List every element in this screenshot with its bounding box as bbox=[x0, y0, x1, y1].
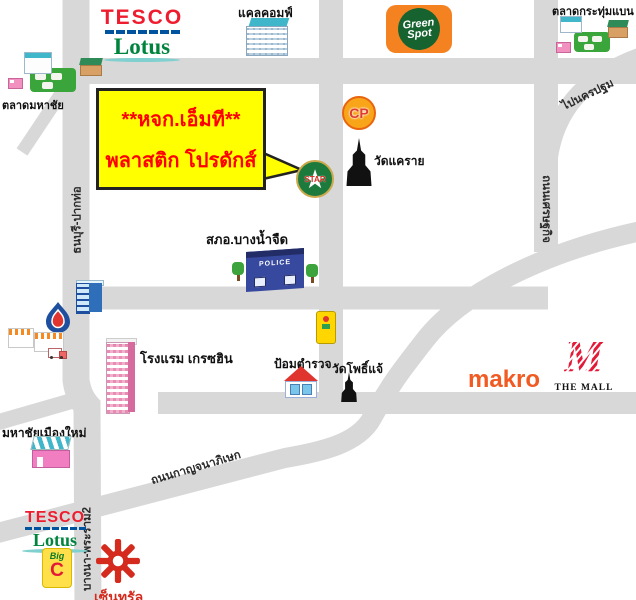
company-name-line2: พลาสติก โปรดักส์ bbox=[99, 144, 263, 176]
the-mall-word: THE MALL bbox=[554, 383, 614, 393]
star-word: STAR bbox=[298, 175, 332, 184]
the-mall-logo: M THE MALL bbox=[554, 334, 614, 393]
lotus-wordmark: Lotus bbox=[16, 532, 94, 549]
green-spot-word2: Spot bbox=[407, 28, 432, 41]
central-flower-icon bbox=[95, 538, 141, 584]
hotel-building-icon bbox=[106, 338, 136, 412]
roadside-sign-icon bbox=[316, 311, 336, 344]
road-left-exit bbox=[0, 398, 82, 424]
pink-house-icon bbox=[32, 436, 70, 468]
pink-house-roof bbox=[30, 436, 71, 450]
wat-pho-chae-label: วัดโพธิ์แจ้ bbox=[332, 360, 383, 379]
police-box-body bbox=[285, 381, 317, 398]
krathum-market-field-icon bbox=[574, 32, 610, 52]
ptt-flame-icon bbox=[46, 302, 70, 334]
road-label-thonburi-paktho: ธนบุรี-ปากท่อ bbox=[69, 173, 87, 268]
makro-logo: makro bbox=[468, 366, 540, 394]
sign-dot bbox=[323, 316, 329, 322]
police-sign: POLICE bbox=[246, 258, 304, 269]
tesco-wordmark: TESCO bbox=[98, 8, 186, 28]
krathum-market-building-icon bbox=[560, 16, 582, 33]
krathum-market-house-icon bbox=[608, 20, 628, 38]
big-c-logo: Big C bbox=[42, 548, 72, 588]
police-building: POLICE bbox=[246, 248, 304, 292]
green-spot-circle: Green Spot bbox=[396, 6, 442, 52]
tree-icon bbox=[306, 264, 318, 284]
the-mall-m-icon: M bbox=[554, 334, 614, 378]
shop-icon bbox=[8, 328, 34, 348]
wat-khae-rai-label: วัดแคราย bbox=[374, 152, 425, 171]
sign-bar bbox=[322, 324, 330, 329]
police-window bbox=[284, 275, 296, 286]
lotus-wordmark: Lotus bbox=[98, 36, 186, 58]
tesco-lotus-logo-bottom: TESCO Lotus bbox=[16, 510, 94, 553]
central-word: เซ็นทรัล bbox=[94, 587, 142, 600]
blue-building-icon bbox=[76, 280, 103, 312]
the-mall-m: M bbox=[563, 334, 605, 378]
police-station-icon: POLICE bbox=[232, 246, 316, 292]
road-label-setthakit: ถนนเศรษฐกิจ bbox=[537, 164, 555, 254]
green-spot-logo: Green Spot bbox=[386, 5, 452, 53]
tree-icon bbox=[232, 262, 244, 282]
mahachai-market-building-icon bbox=[24, 52, 52, 74]
star-gas-logo: ★ STAR bbox=[296, 160, 334, 198]
krathum-market-truck-icon bbox=[556, 42, 571, 53]
map-canvas: ธนบุรี-ปากท่อ บางนา-พระราม2 ถนนเศรษฐกิจ … bbox=[0, 0, 636, 600]
tesco-wordmark: TESCO bbox=[16, 510, 94, 525]
calcomp-roof bbox=[249, 18, 290, 26]
truck-icon bbox=[48, 348, 62, 358]
central-logo: เซ็นทรัล bbox=[94, 538, 142, 600]
company-name: **หจก.เอ็มที** bbox=[99, 103, 263, 135]
police-box-icon bbox=[284, 366, 318, 398]
mahachai-market-truck-icon bbox=[8, 78, 23, 89]
wat-khae-rai-temple-icon bbox=[346, 138, 372, 186]
calcomp-building-icon bbox=[246, 18, 288, 56]
cp-logo: CP bbox=[342, 96, 376, 130]
hotel-label: โรงแรม เกรซฮิน bbox=[140, 348, 233, 369]
big-c-word-c: C bbox=[43, 561, 71, 580]
company-callout: **หจก.เอ็มที** พลาสติก โปรดักส์ bbox=[96, 88, 266, 190]
police-window bbox=[254, 277, 266, 288]
police-box-roof bbox=[284, 366, 318, 381]
pink-house-body bbox=[32, 450, 70, 468]
tesco-lotus-logo-top: TESCO Lotus bbox=[98, 8, 186, 62]
mahachai-market-house-icon bbox=[80, 58, 102, 76]
calcomp-windows bbox=[246, 26, 288, 56]
cp-word: CP bbox=[349, 105, 368, 121]
talat-mahachai-label: ตลาดมหาชัย bbox=[2, 96, 64, 114]
